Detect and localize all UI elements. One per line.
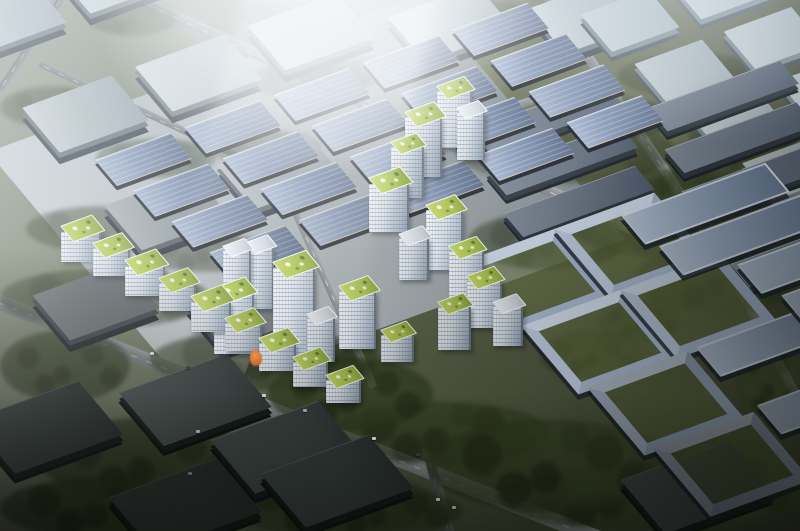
car (303, 409, 307, 412)
car (186, 366, 190, 369)
tower-facade (457, 112, 485, 160)
context-northeast-building (581, 0, 680, 52)
car (436, 498, 440, 501)
context-northeast-building (670, 0, 769, 19)
tower-facade (339, 291, 376, 349)
aerial-rendering-scene (0, 0, 800, 531)
car (372, 437, 376, 440)
car (452, 506, 456, 509)
tower-facade (399, 238, 429, 280)
car (262, 394, 266, 397)
car (196, 430, 200, 433)
car (150, 352, 154, 355)
car (416, 453, 420, 456)
car (188, 472, 192, 475)
orange-sculpture (250, 350, 262, 366)
tower-facade (438, 307, 471, 350)
